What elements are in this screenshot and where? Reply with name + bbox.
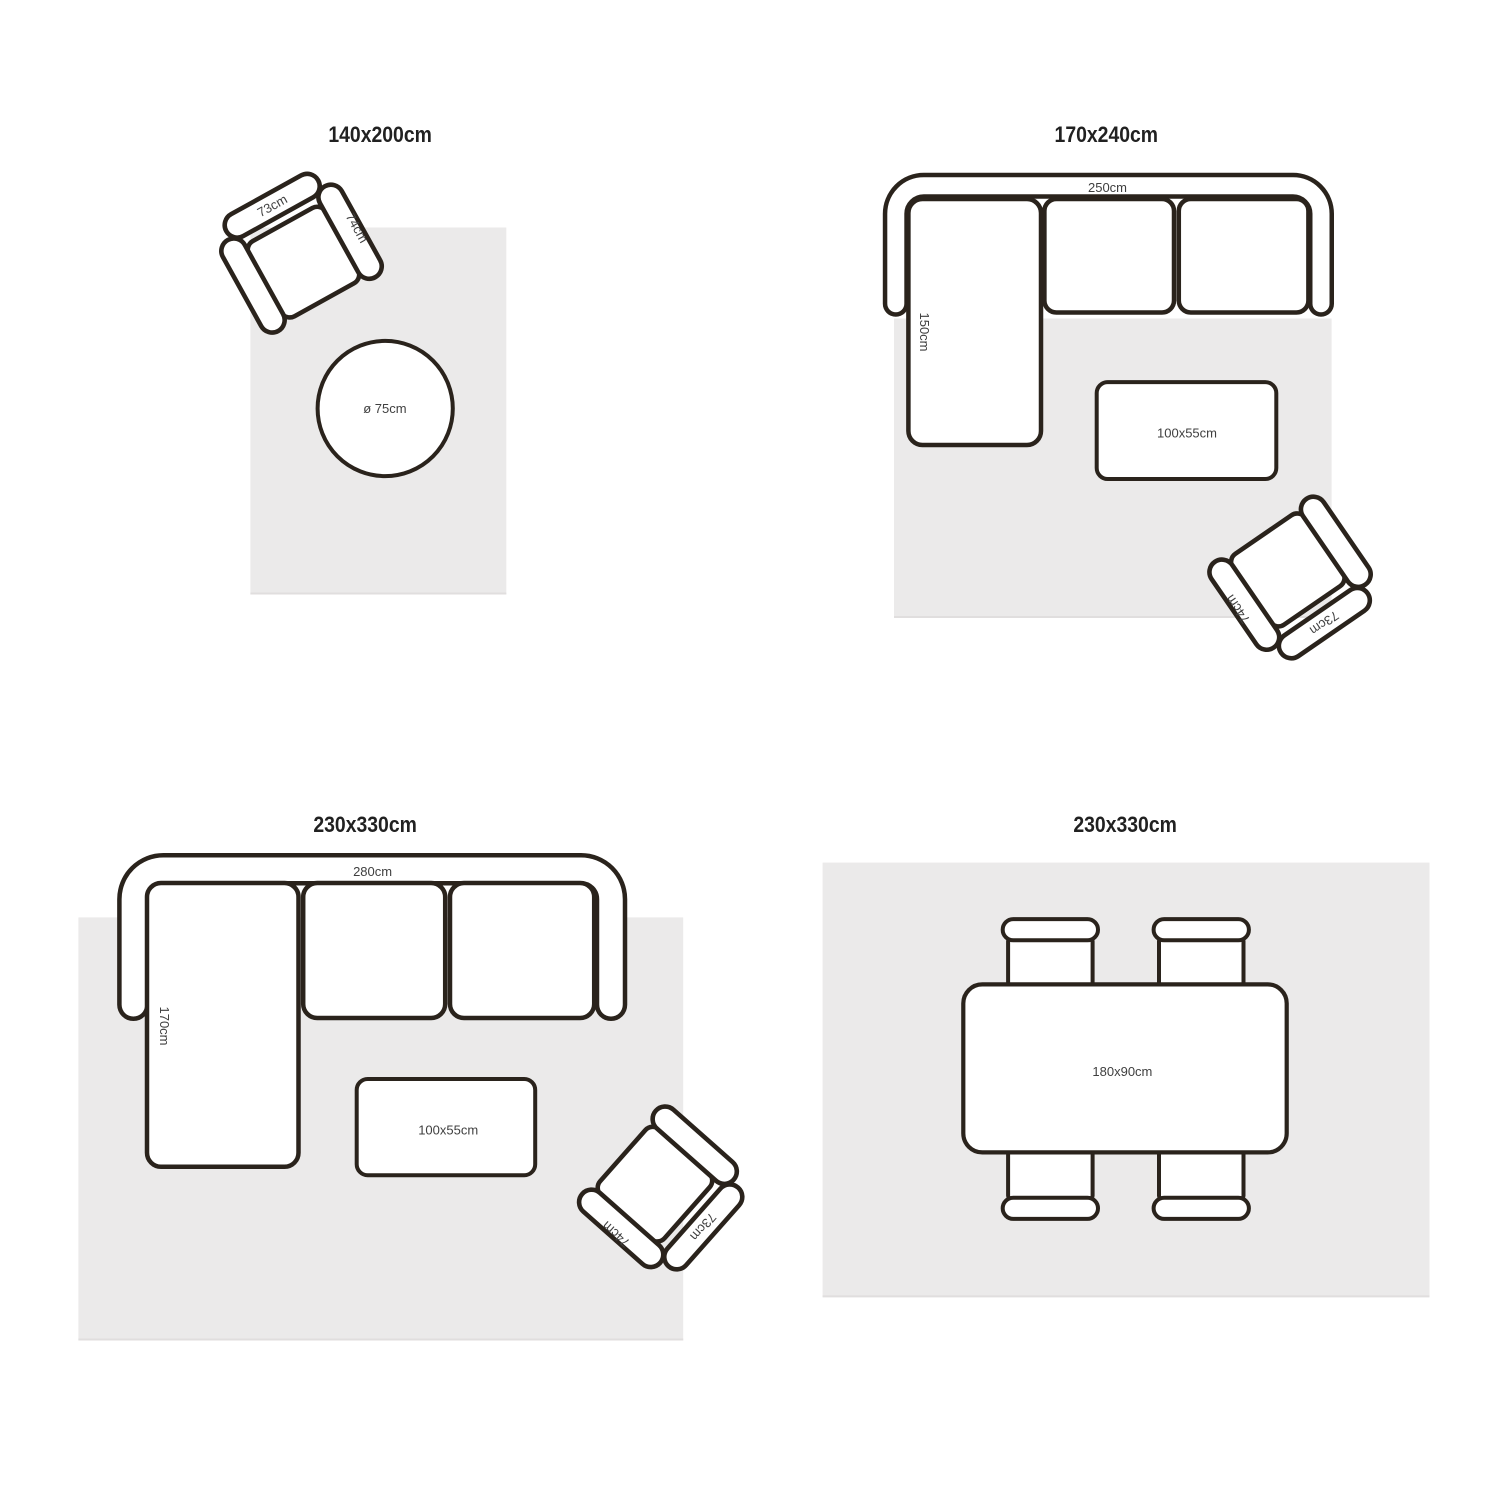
svg-text:250cm: 250cm (1088, 180, 1127, 195)
svg-text:100x55cm: 100x55cm (1157, 426, 1217, 441)
svg-text:140x200cm: 140x200cm (328, 122, 432, 147)
svg-text:230x330cm: 230x330cm (1073, 812, 1177, 837)
svg-text:180x90cm: 180x90cm (1092, 1064, 1152, 1079)
svg-text:150cm: 150cm (917, 312, 932, 351)
svg-text:ø 75cm: ø 75cm (363, 401, 406, 416)
svg-text:100x55cm: 100x55cm (418, 1123, 478, 1138)
svg-text:230x330cm: 230x330cm (313, 812, 417, 837)
svg-text:280cm: 280cm (353, 864, 392, 879)
svg-text:170x240cm: 170x240cm (1055, 122, 1159, 147)
svg-text:170cm: 170cm (157, 1006, 172, 1045)
